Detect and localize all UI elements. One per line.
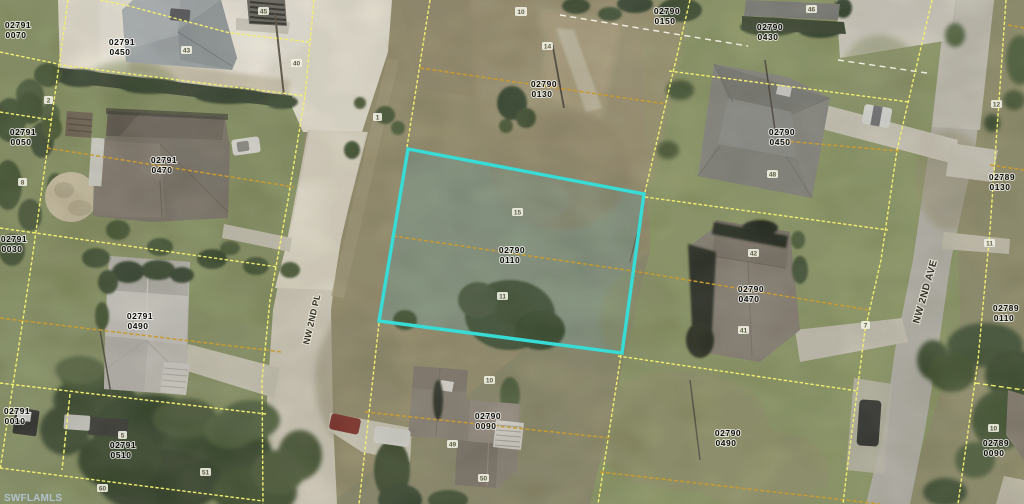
svg-text:12: 12 (993, 102, 1001, 109)
svg-text:0110: 0110 (994, 313, 1014, 323)
svg-text:0070: 0070 (6, 30, 27, 40)
svg-text:11: 11 (986, 241, 993, 248)
svg-text:48: 48 (769, 172, 777, 179)
svg-text:0490: 0490 (716, 438, 737, 448)
svg-text:02791: 02791 (151, 155, 177, 165)
svg-text:50: 50 (480, 476, 488, 483)
svg-text:02791: 02791 (109, 37, 135, 47)
svg-text:0150: 0150 (655, 16, 676, 26)
svg-text:45: 45 (260, 9, 268, 16)
svg-text:02790: 02790 (715, 428, 741, 438)
svg-text:0470: 0470 (739, 294, 760, 304)
svg-text:43: 43 (183, 48, 191, 55)
svg-text:0130: 0130 (532, 89, 553, 99)
svg-text:02790: 02790 (475, 411, 501, 421)
svg-text:02791: 02791 (4, 406, 30, 416)
svg-text:49: 49 (449, 442, 457, 449)
svg-text:40: 40 (293, 61, 301, 68)
svg-text:15: 15 (514, 210, 522, 217)
svg-text:02790: 02790 (769, 127, 795, 137)
svg-text:0450: 0450 (110, 47, 131, 57)
svg-text:SWFLAMLS: SWFLAMLS (4, 493, 62, 504)
svg-text:60: 60 (99, 486, 107, 493)
svg-text:0450: 0450 (770, 137, 791, 147)
svg-text:0490: 0490 (128, 321, 149, 331)
svg-text:0510: 0510 (111, 450, 132, 460)
svg-text:10: 10 (990, 426, 998, 433)
svg-text:0470: 0470 (152, 165, 173, 175)
svg-text:7: 7 (864, 323, 868, 330)
svg-text:0010: 0010 (5, 416, 26, 426)
svg-text:02791: 02791 (10, 127, 36, 137)
svg-text:46: 46 (808, 7, 816, 14)
svg-text:5: 5 (121, 433, 125, 440)
svg-text:02791: 02791 (127, 311, 153, 321)
svg-text:2: 2 (47, 98, 51, 105)
svg-text:10: 10 (517, 9, 525, 16)
svg-text:02790: 02790 (654, 6, 680, 16)
svg-text:0090: 0090 (984, 448, 1005, 458)
svg-text:0430: 0430 (758, 32, 779, 42)
svg-text:10: 10 (486, 378, 494, 385)
svg-text:02791: 02791 (1, 234, 27, 244)
svg-text:02789: 02789 (993, 303, 1019, 313)
svg-text:02790: 02790 (499, 245, 525, 255)
svg-text:02789: 02789 (983, 438, 1009, 448)
svg-text:02791: 02791 (110, 440, 136, 450)
svg-text:02791: 02791 (5, 20, 31, 30)
svg-text:41: 41 (740, 328, 748, 335)
svg-text:0050: 0050 (11, 137, 32, 147)
svg-text:02790: 02790 (757, 22, 783, 32)
svg-text:0130: 0130 (990, 182, 1011, 192)
svg-text:0110: 0110 (500, 255, 520, 265)
svg-text:11: 11 (499, 294, 506, 301)
svg-text:0030: 0030 (2, 244, 23, 254)
svg-text:0090: 0090 (476, 421, 497, 431)
svg-text:14: 14 (544, 44, 552, 51)
svg-text:02790: 02790 (738, 284, 764, 294)
svg-text:02789: 02789 (989, 172, 1015, 182)
svg-text:8: 8 (21, 180, 25, 187)
svg-text:51: 51 (202, 470, 210, 477)
svg-text:42: 42 (750, 251, 758, 258)
svg-text:02790: 02790 (531, 79, 557, 89)
svg-text:1: 1 (376, 115, 380, 122)
